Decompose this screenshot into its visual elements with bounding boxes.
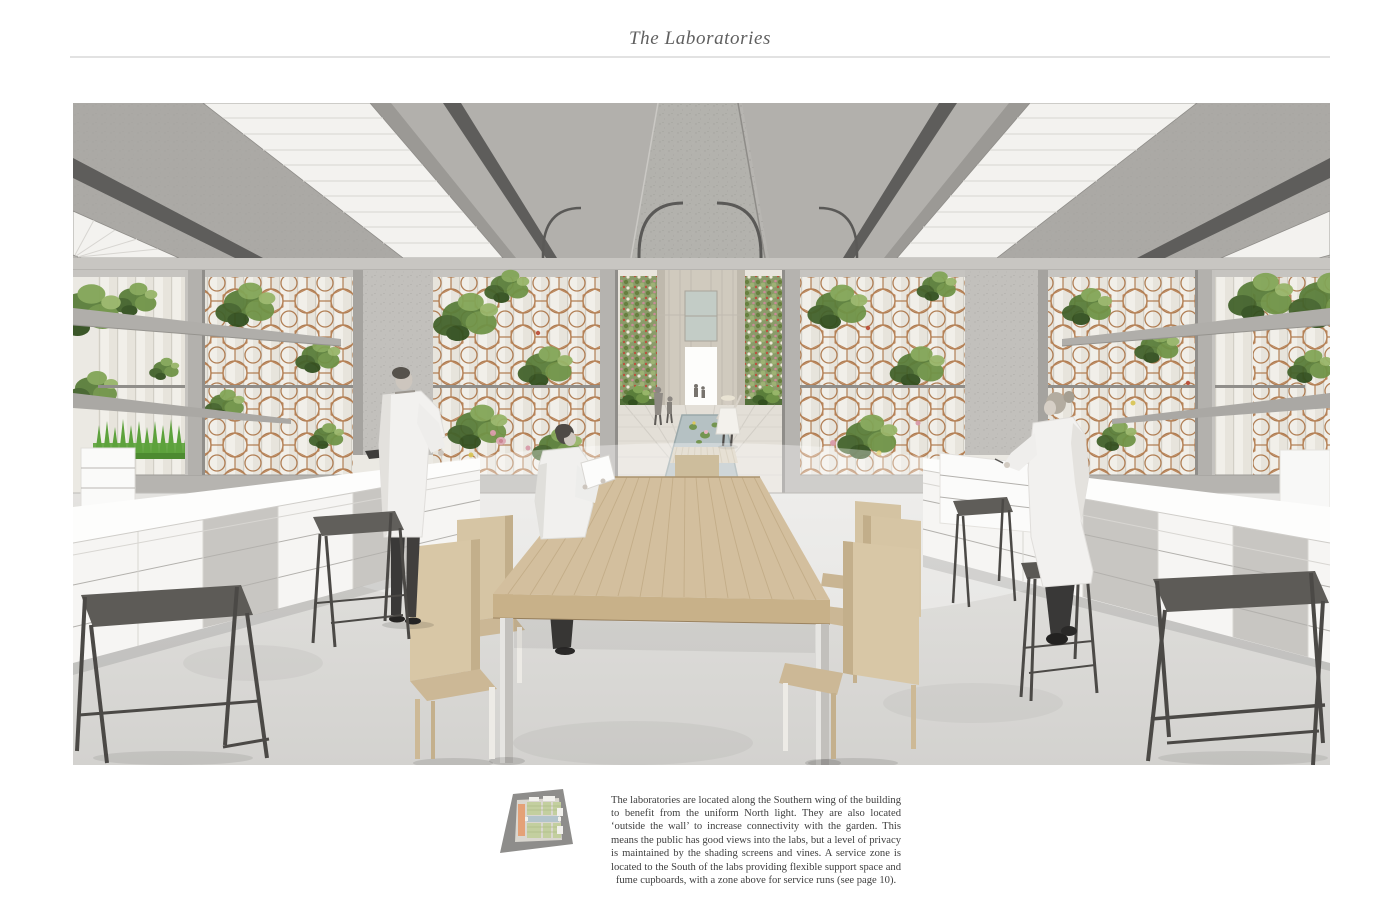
site-plan-thumbnail <box>499 786 589 864</box>
page-title: The Laboratories <box>0 28 1400 50</box>
caption-text: The laboratories are located along the S… <box>611 794 901 888</box>
garden-wall-building <box>657 270 745 405</box>
plan-lab-wing <box>518 804 525 836</box>
title-divider-rule <box>70 56 1330 58</box>
concrete-ceiling <box>73 103 1330 270</box>
ceiling-fascia <box>73 258 1330 270</box>
garden-doorway <box>685 347 717 405</box>
green-wall-left <box>620 276 657 400</box>
laboratory-rendering <box>73 103 1330 765</box>
green-wall-right <box>745 276 782 400</box>
plan-water-channel <box>527 816 559 822</box>
